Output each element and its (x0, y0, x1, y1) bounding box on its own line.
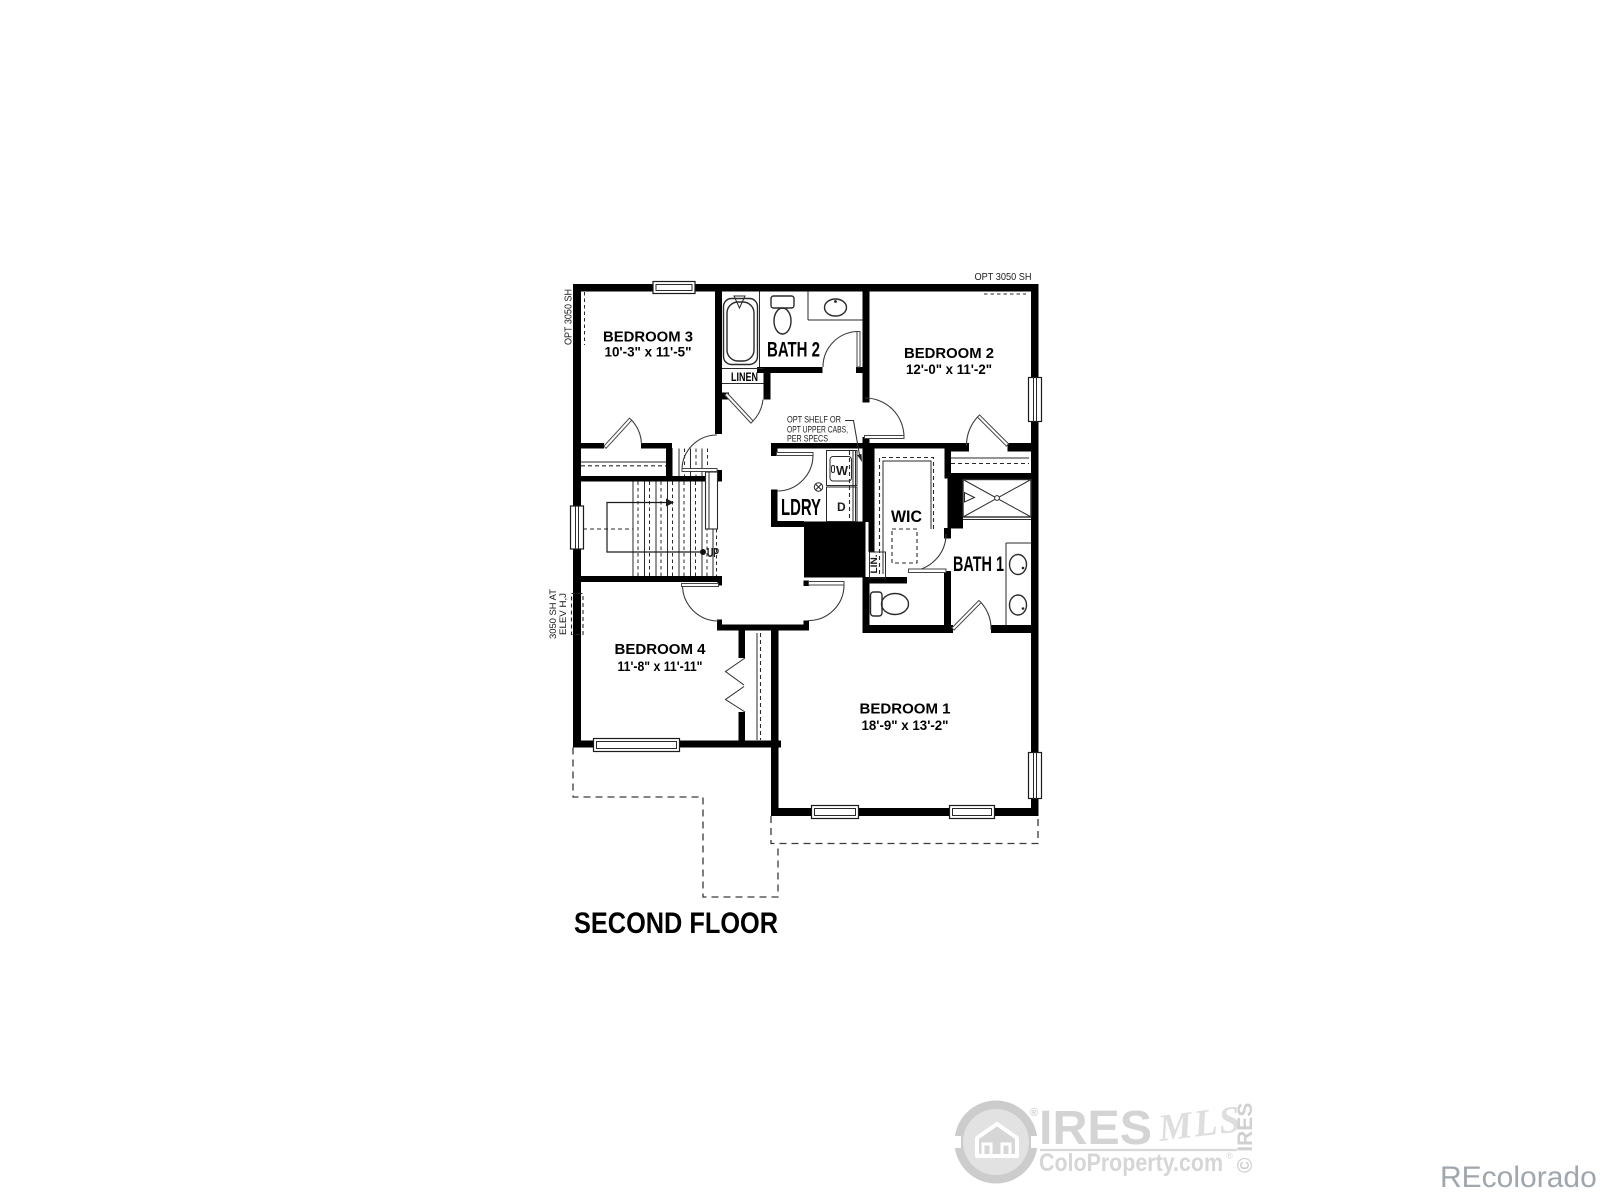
svg-text:LDRY: LDRY (781, 494, 821, 520)
svg-text:12'-0" x 11'-2": 12'-0" x 11'-2" (906, 361, 992, 377)
svg-text:OPT 3050 SH: OPT 3050 SH (975, 271, 1032, 283)
svg-text:WIC: WIC (891, 507, 922, 526)
svg-text:BATH 1: BATH 1 (953, 553, 1004, 576)
svg-text:BEDROOM 4: BEDROOM 4 (615, 642, 706, 658)
svg-text:W: W (836, 463, 849, 478)
svg-text:IRES: IRES (1039, 1102, 1152, 1155)
svg-text:ColoProperty.com: ColoProperty.com (1039, 1149, 1223, 1177)
svg-text:BATH 2: BATH 2 (767, 339, 820, 362)
svg-text:BEDROOM 1: BEDROOM 1 (860, 702, 951, 718)
svg-text:SECOND FLOOR: SECOND FLOOR (574, 907, 778, 940)
svg-text:18'-9" x 13'-2": 18'-9" x 13'-2" (862, 717, 949, 733)
svg-text:®: ® (1030, 1107, 1038, 1119)
svg-text:10'-3" x 11'-5": 10'-3" x 11'-5" (605, 344, 692, 360)
svg-text:ELEV H,J: ELEV H,J (558, 593, 569, 635)
svg-text:REcolorado: REcolorado (1440, 1161, 1597, 1194)
svg-text:11'-8" x 11'-11": 11'-8" x 11'-11" (618, 658, 703, 674)
svg-text:®: ® (1226, 1151, 1233, 1161)
svg-text:LIN.: LIN. (869, 555, 879, 574)
svg-text:BEDROOM 2: BEDROOM 2 (904, 346, 994, 362)
svg-text:UP: UP (707, 546, 719, 560)
svg-text:D: D (837, 500, 846, 514)
svg-text:LINEN: LINEN (731, 372, 758, 384)
svg-text:OPT 3050 SH: OPT 3050 SH (564, 289, 575, 345)
svg-text:© IRES: © IRES (1234, 1103, 1257, 1173)
svg-text:PER SPECS: PER SPECS (787, 434, 828, 445)
